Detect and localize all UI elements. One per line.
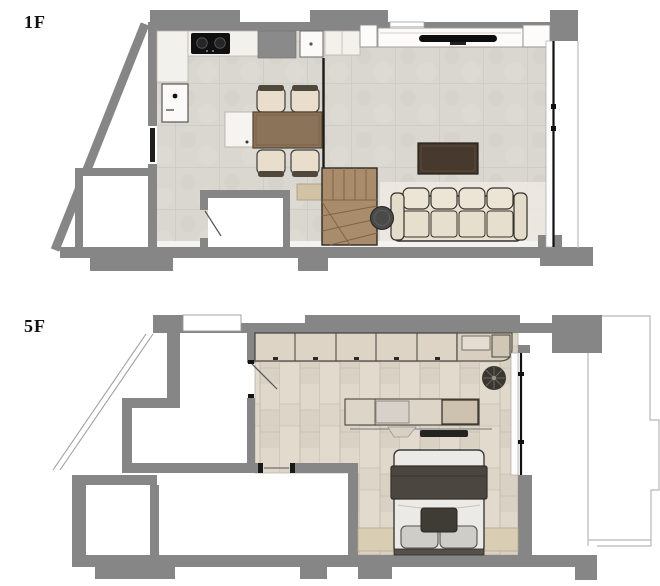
floor-plan-drawing bbox=[0, 0, 660, 586]
right-wall-lower bbox=[518, 475, 532, 555]
storage-room-a bbox=[75, 168, 157, 247]
bedroom-wall-upper bbox=[247, 333, 255, 363]
dining-chair bbox=[257, 85, 285, 112]
storage-room-b-floor bbox=[208, 198, 283, 247]
wardrobe-row bbox=[255, 333, 457, 361]
bottom-pillar-b bbox=[300, 567, 327, 579]
console-drawer bbox=[376, 401, 409, 423]
bed-cushion bbox=[421, 508, 457, 532]
sofa-back-cushion bbox=[459, 188, 485, 209]
glass-wall-1f bbox=[546, 41, 556, 247]
bottom-pillar-left bbox=[90, 258, 173, 271]
left-wall-c bbox=[122, 408, 132, 465]
room-b-wall-left-upper bbox=[200, 198, 208, 210]
stair-flight bbox=[322, 168, 377, 245]
left-wall-upper bbox=[148, 31, 157, 128]
small-room-wall-right bbox=[150, 485, 159, 565]
bottom-pillar-c bbox=[358, 567, 392, 579]
storage-room-a-floor bbox=[83, 176, 148, 247]
refrigerator-column bbox=[258, 31, 296, 58]
kitchen-island bbox=[225, 112, 253, 147]
sink-unit bbox=[162, 84, 188, 122]
bed-corner-wall bbox=[348, 473, 358, 555]
bottom-wall-5f bbox=[72, 555, 597, 567]
left-wall-b bbox=[122, 398, 180, 408]
sofa-seat-cushion bbox=[487, 211, 513, 237]
room-a-wall-right bbox=[148, 176, 157, 247]
coffee-table bbox=[418, 143, 478, 174]
window-sill bbox=[511, 353, 518, 475]
top-left-block bbox=[153, 315, 183, 333]
corner-counter bbox=[457, 333, 512, 361]
room-b-wall-left-lower bbox=[200, 238, 208, 247]
top-ledge bbox=[183, 315, 241, 331]
sofa-back-cushion bbox=[403, 188, 429, 209]
sofa-seat-cushion bbox=[459, 211, 485, 237]
kitchen-counter-left bbox=[157, 31, 188, 82]
small-room-wall-top bbox=[72, 475, 157, 485]
sofa-back-cushion bbox=[487, 188, 513, 209]
lower-left-wall bbox=[72, 475, 86, 557]
bedroom-wall-lower bbox=[247, 398, 255, 465]
burner-icon bbox=[215, 38, 226, 49]
bottom-pillar-a bbox=[95, 567, 175, 579]
dishwasher bbox=[300, 31, 323, 57]
entry-door bbox=[148, 126, 157, 164]
bottom-wall bbox=[60, 247, 540, 258]
top-wall-raised bbox=[305, 315, 520, 333]
room-a-wall-left bbox=[75, 176, 83, 247]
floor-label-1f: 1F bbox=[24, 12, 46, 33]
room-b-wall-right bbox=[283, 190, 290, 247]
plant bbox=[482, 366, 506, 390]
room-b-wall-top bbox=[200, 190, 290, 198]
keyboard bbox=[420, 430, 468, 437]
mid-wall-left bbox=[130, 463, 258, 473]
blanket bbox=[391, 466, 487, 499]
sofa-back-cushion bbox=[431, 188, 457, 209]
entry-door-leaf bbox=[150, 128, 155, 162]
sofa-armrest bbox=[514, 193, 527, 240]
kitchen-counter-right bbox=[325, 31, 360, 55]
left-wall-a bbox=[167, 333, 180, 398]
dining-table bbox=[253, 112, 322, 148]
console-cabinet-left bbox=[360, 25, 377, 47]
sofa-seat-cushion bbox=[431, 211, 457, 237]
dining-chair bbox=[291, 150, 319, 177]
bottom-right-extension bbox=[540, 247, 593, 266]
console-cabinet bbox=[442, 400, 478, 424]
sofa-seat-cushion bbox=[403, 211, 429, 237]
window-sill bbox=[546, 41, 553, 247]
cooktop bbox=[191, 33, 230, 54]
bottom-pillar-mid bbox=[298, 258, 328, 271]
sofa bbox=[391, 188, 527, 241]
round-side-table bbox=[371, 207, 394, 230]
top-corner-block bbox=[550, 10, 578, 41]
stair-landing bbox=[297, 184, 323, 200]
burner-icon bbox=[197, 38, 208, 49]
tv-console bbox=[360, 25, 550, 47]
floor-plan-page: 1F 5F bbox=[0, 0, 660, 586]
room-a-wall-top bbox=[75, 168, 157, 176]
dining-chair bbox=[291, 85, 319, 112]
headboard bbox=[394, 549, 484, 555]
floor-label-5f: 5F bbox=[24, 316, 46, 337]
bottom-pillar-d bbox=[575, 567, 597, 580]
right-wall-stub bbox=[518, 345, 530, 353]
faucet-icon bbox=[173, 94, 178, 99]
floor-1f bbox=[55, 10, 593, 271]
mid-wall-right bbox=[295, 463, 358, 473]
top-right-block bbox=[552, 315, 602, 353]
dining-chair bbox=[257, 150, 285, 177]
glass-wall-5f bbox=[511, 353, 524, 475]
floor-5f bbox=[53, 315, 659, 580]
